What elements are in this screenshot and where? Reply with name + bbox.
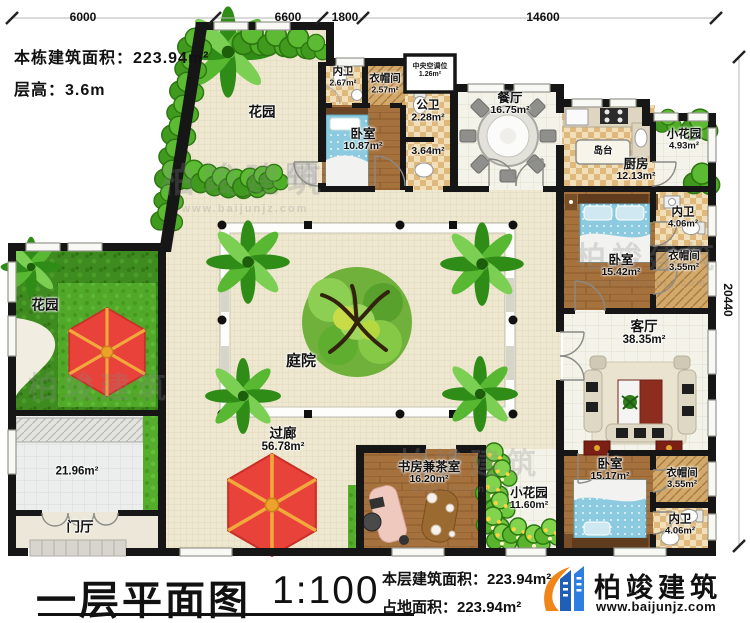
room-label-bath-3: 内卫4.06m² [665,513,695,537]
footer-site-area: 占地面积：223.94m² [382,596,521,617]
dim-top-4: 14600 [526,10,559,24]
dim-top-2: 6600 [275,10,302,24]
room-label-corridor: 过廊56.78m² [262,426,305,454]
room-label-bath-1: 内卫2.67m² [330,66,357,87]
title-underline [38,613,414,616]
dim-top-1: 6000 [70,10,97,24]
footer-floor-area: 本层建筑面积：223.94m² [382,568,551,589]
svg-text:www.baijunjz.com: www.baijunjz.com [588,278,707,289]
dimension-line-top [6,12,722,24]
svg-text:www.baijunjz.com: www.baijunjz.com [181,203,309,215]
page-scale: 1:100 [272,569,380,613]
room-label-island: 岛台 [593,147,612,158]
room-label-dining: 餐厅16.75m² [490,91,529,117]
room-label-bedroom-1: 卧室10.87m² [343,127,382,153]
svg-text:柏竣建筑: 柏竣建筑 [28,371,172,405]
svg-text:柏竣建筑: 柏竣建筑 [161,161,329,200]
room-label-bedroom-3: 卧室15.17m² [590,457,629,483]
bed-bottom-right-icon [564,480,656,548]
dim-top-3: 1800 [332,10,359,24]
courtyard-tree-icon [302,267,412,377]
room-label-hall-364: 3.64m² [411,146,444,158]
room-label-courtyard: 庭院 [286,354,316,371]
room-label-public-bath: 公卫2.28m² [411,100,444,125]
room-label-room-2196: 21.96m² [56,466,99,479]
brand-url: www.baijunjz.com [596,599,716,614]
room-label-garden-top: 花园 [249,104,276,119]
room-label-foyer: 门厅 [67,519,94,534]
room-label-cloak-1: 衣帽间2.57m² [369,73,401,94]
room-label-study: 书房兼茶室16.20m² [398,460,461,486]
room-label-bedroom-2: 卧室15.42m² [601,253,640,279]
courtyard [205,220,524,434]
building-area-note: 本栋建筑面积：223.94m² [14,44,210,68]
room-label-cloak-2: 衣帽间3.55m² [668,251,700,273]
room-label-cloak-3: 衣帽间3.55m² [666,468,698,490]
room-label-garden-left: 花园 [32,297,59,312]
floor-height-note: 层高：3.6m [14,76,105,100]
room-label-bath-2: 内卫4.06m² [668,206,698,230]
room-label-living: 客厅38.35m² [623,319,666,347]
sofa-set-icon [584,356,696,455]
dim-right: 20440 [721,283,735,316]
room-label-kitchen: 厨房12.13m² [616,157,655,183]
floor-plan-page: 柏竣建筑 www.baijunjz.com 柏竣建筑 柏竣建筑 www.baij… [0,0,750,623]
room-label-small-garden-bottom: 小花园11.60m² [510,486,549,512]
room-label-small-garden-top: 小花园4.93m² [667,128,702,152]
brand-logo-icon [538,557,592,617]
room-label-ac: 中央空调位1.26m² [413,63,448,79]
